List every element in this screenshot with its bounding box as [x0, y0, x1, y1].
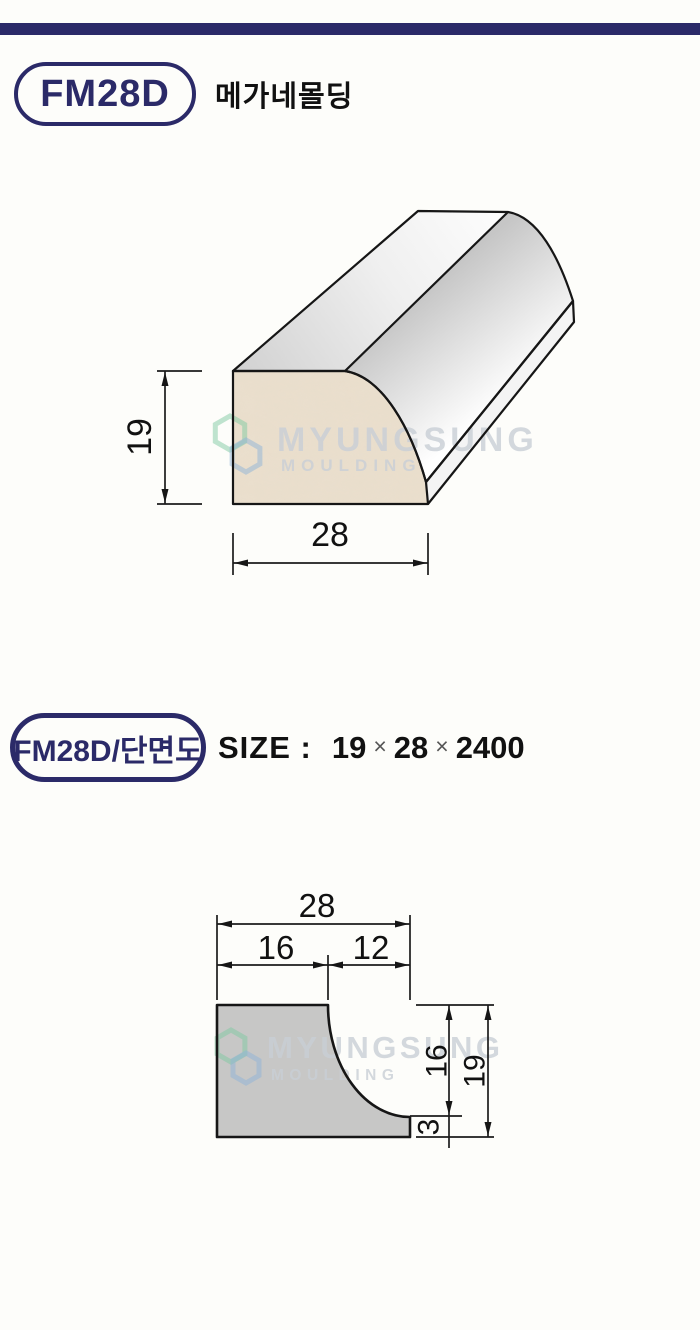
size-spec: SIZE : 19 × 28 × 2400 [218, 713, 525, 782]
size-height: 19 [332, 730, 366, 766]
watermark-brand: MYUNGSUNG [277, 421, 538, 459]
section-badge-label: FM28D/단면도 [13, 726, 203, 770]
size-values: 19 × 28 × 2400 [332, 730, 525, 766]
catalog-page: FM28D 메가네몰딩 [0, 0, 700, 1330]
dim-right-label: 12 [353, 929, 390, 966]
profile-3d-drawing: MYUNGSUNG MOULDING 19 28 [0, 150, 700, 620]
product-code: FM28D [40, 73, 170, 116]
product-name-label: 메가네몰딩 [215, 62, 353, 126]
multiply-sign: × [373, 733, 386, 760]
dim-side-upper-label: 16 [421, 1044, 454, 1077]
size-width: 28 [394, 730, 428, 766]
dim-height-label: 19 [121, 418, 159, 456]
multiply-sign: × [435, 733, 448, 760]
dim-left-label: 16 [258, 929, 295, 966]
size-label: SIZE : [218, 730, 312, 766]
watermark-sub: MOULDING [271, 1067, 399, 1084]
section-badge: FM28D/단면도 [10, 713, 206, 782]
watermark-sub: MOULDING [281, 456, 422, 475]
dim-total-width-label: 28 [299, 887, 336, 924]
cross-section-drawing: MYUNGSUNG MOULDING 28 16 12 [0, 860, 700, 1190]
dim-side-lip-label: 3 [413, 1119, 446, 1136]
dim-width-label: 28 [311, 516, 349, 554]
top-accent-bar [0, 23, 700, 35]
size-length: 2400 [456, 730, 525, 766]
dim-side-total-label: 19 [459, 1054, 492, 1087]
product-code-badge: FM28D [14, 62, 196, 126]
